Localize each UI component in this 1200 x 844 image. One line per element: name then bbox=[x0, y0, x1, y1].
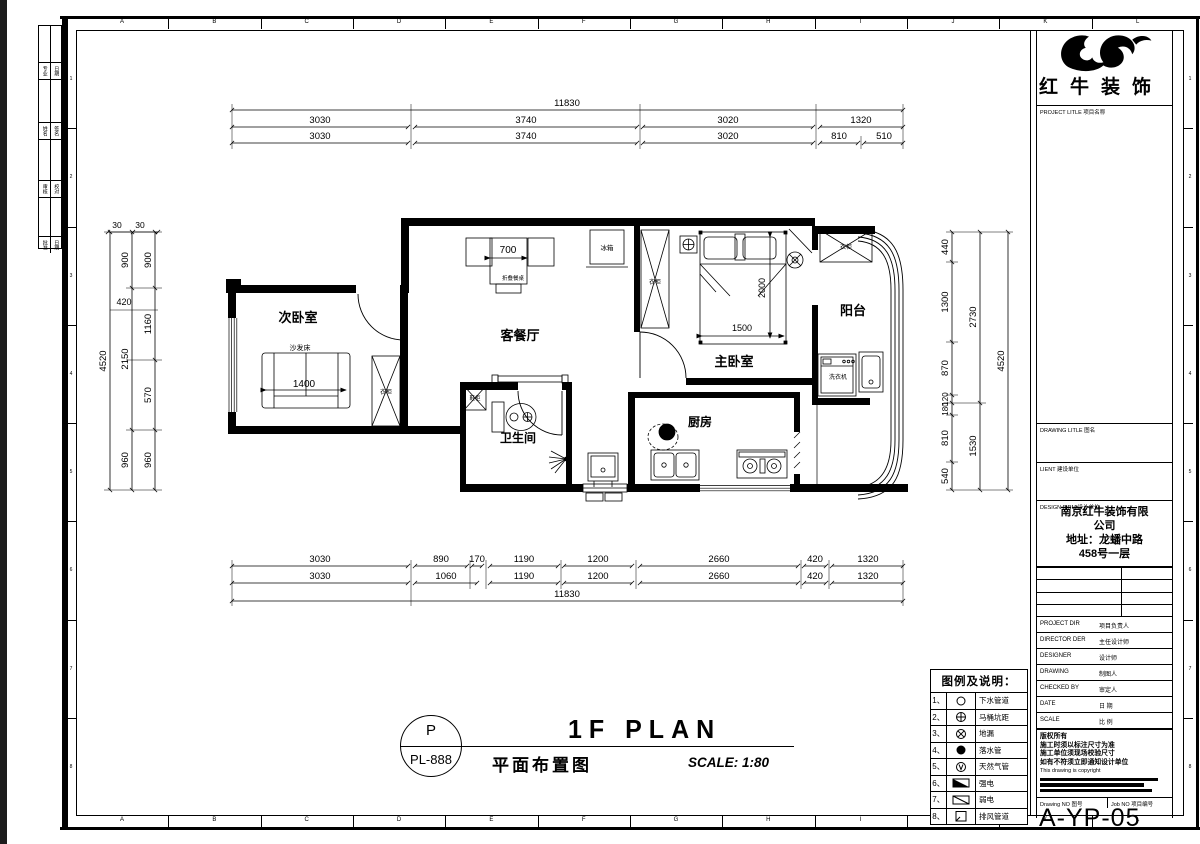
legend-label: 地漏 bbox=[976, 728, 1027, 739]
dim-table: 700 bbox=[500, 245, 517, 256]
dimension-lines bbox=[108, 110, 1008, 601]
legend-row: 7、 弱电 bbox=[931, 792, 1027, 809]
dim-label: 960 bbox=[120, 452, 131, 468]
gas-symbol bbox=[787, 252, 803, 268]
legend-no: 4、 bbox=[931, 743, 947, 759]
project-title-label: PROJECT LITLE 项目名称 bbox=[1040, 108, 1105, 116]
drawing-number-block: Drawing NO 图号 Job NO 项目编号 A-YP-05 bbox=[1037, 797, 1172, 830]
dim-label: 4520 bbox=[996, 350, 1007, 371]
label-shoe-cabinet: 鞋柜 bbox=[469, 394, 481, 402]
dim-label: 870 bbox=[940, 360, 951, 376]
dim-label: 3030 bbox=[309, 115, 330, 126]
dim-label: 810 bbox=[831, 131, 847, 142]
legend-no: 7、 bbox=[931, 792, 947, 808]
legend-no: 5、 bbox=[931, 759, 947, 775]
dim-label: 1300 bbox=[940, 291, 951, 312]
stamp-line bbox=[400, 746, 794, 747]
client-label: LIENT 建设单位 bbox=[1040, 465, 1079, 473]
legend-no: 8、 bbox=[931, 809, 947, 825]
label-wardrobe: 衣柜 bbox=[380, 388, 392, 396]
dim-bed-length: 2000 bbox=[757, 278, 767, 298]
gas-stove bbox=[737, 450, 787, 478]
stamp-code: PL-888 bbox=[400, 752, 462, 767]
titleblock-row: DRAWING制图人 bbox=[1037, 664, 1172, 680]
titleblock-row: DATE日 期 bbox=[1037, 696, 1172, 712]
legend-row: 4、 落水管 bbox=[931, 743, 1027, 760]
strong-power-icon bbox=[947, 776, 976, 792]
plan-title-cn: 平面布置图 bbox=[492, 751, 592, 776]
dim-label: 510 bbox=[876, 131, 892, 142]
dim-label: 1530 bbox=[968, 435, 979, 456]
dim-label: 30 bbox=[135, 220, 145, 230]
legend-label: 强电 bbox=[976, 778, 1027, 789]
titleblock-row: CHECKED BY审定人 bbox=[1037, 680, 1172, 696]
label-wardrobe: 衣柜 bbox=[840, 243, 852, 251]
drawing-title-label: DRAWING LITLE 图名 bbox=[1040, 426, 1095, 434]
dim-label: 900 bbox=[120, 252, 131, 268]
room-label-bedroom2: 次卧室 bbox=[278, 310, 317, 325]
dim-label: 420 bbox=[116, 297, 131, 307]
legend-box: 图例及说明： 1、 下水管道 2、 马桶坑距 3、 地漏 4、 落水管 5、 天… bbox=[930, 669, 1028, 825]
label-sofa-bed: 沙发床 bbox=[290, 343, 311, 352]
room-label-master: 主卧室 bbox=[714, 354, 753, 369]
dim-label: 3740 bbox=[515, 115, 536, 126]
wok-symbol bbox=[648, 424, 678, 450]
legend-label: 弱电 bbox=[976, 794, 1027, 805]
dim-label: 2660 bbox=[708, 554, 729, 565]
legend-row: 6、 强电 bbox=[931, 776, 1027, 793]
dim-label: 900 bbox=[143, 252, 154, 268]
drawing-sheet: AABBCCDDEEFFGGHHIIJJKKLL1122334455667788… bbox=[0, 0, 1200, 844]
legend-label: 落水管 bbox=[976, 745, 1027, 756]
shower-symbol bbox=[549, 451, 568, 473]
dim-label: 1160 bbox=[143, 314, 154, 334]
dim-label: 3740 bbox=[515, 131, 536, 142]
legend-no: 1、 bbox=[931, 693, 947, 709]
legend-label: 天然气管 bbox=[976, 761, 1027, 772]
room-label-bath: 卫生间 bbox=[500, 430, 536, 445]
dim-label: 3030 bbox=[309, 131, 330, 142]
exhaust-duct-icon bbox=[947, 809, 976, 825]
design-firm-info: 南京红牛装饰有限 公司 地址：龙蟠中路 458号一层 bbox=[1037, 505, 1172, 561]
dim-label: 180 bbox=[941, 402, 950, 416]
label-washer: 洗衣机 bbox=[829, 373, 847, 381]
downspout-icon bbox=[947, 743, 976, 759]
room-label-living: 客餐厅 bbox=[500, 328, 539, 343]
dim-label: 11830 bbox=[554, 98, 580, 109]
titleblock-row: DESIGNER设计师 bbox=[1037, 648, 1172, 664]
balcony-sink bbox=[859, 352, 883, 392]
legend-row: 1、 下水管道 bbox=[931, 693, 1027, 710]
balcony-glazing bbox=[858, 229, 903, 499]
titleblock-row: SCALE比 例 bbox=[1037, 712, 1172, 728]
titleblock-row: PROJECT DIR项目负责人 bbox=[1037, 616, 1172, 632]
dim-label: 3030 bbox=[309, 554, 330, 565]
dim-label: 540 bbox=[940, 468, 951, 484]
legend-row: 3、 地漏 bbox=[931, 726, 1027, 743]
dim-label: 4520 bbox=[98, 350, 109, 371]
sewer-pipe-icon bbox=[947, 693, 976, 709]
walls bbox=[226, 218, 908, 492]
dim-label: 30 bbox=[112, 220, 122, 230]
gas-pipe-icon bbox=[947, 759, 976, 775]
label-folding-table: 折叠餐桌 bbox=[502, 274, 525, 282]
company-name: 红牛装饰 bbox=[1035, 72, 1174, 99]
entry-threshold bbox=[583, 484, 627, 501]
label-wardrobe: 衣柜 bbox=[649, 278, 661, 286]
legend-label: 排风管道 bbox=[976, 811, 1027, 822]
dim-label: 1190 bbox=[514, 554, 534, 565]
lamp-symbol bbox=[680, 236, 697, 253]
titleblock-empty-table bbox=[1037, 566, 1172, 616]
dim-bed-width: 1500 bbox=[732, 323, 752, 333]
door-arc-master bbox=[640, 332, 686, 378]
witness-lines bbox=[104, 104, 1013, 606]
floor-drain-icon bbox=[947, 726, 976, 742]
wardrobe-master bbox=[641, 230, 669, 328]
legend-label: 马桶坑距 bbox=[976, 712, 1027, 723]
dim-label: 420 bbox=[807, 554, 823, 565]
dim-label: 810 bbox=[940, 430, 951, 446]
plan-scale: SCALE: 1:80 bbox=[688, 755, 769, 770]
dim-label: 890 bbox=[433, 554, 449, 565]
dim-label: 170 bbox=[469, 554, 485, 565]
dim-label: 2150 bbox=[120, 348, 131, 369]
tv-unit bbox=[492, 375, 568, 383]
dim-label: 3030 bbox=[309, 571, 330, 582]
wash-basin bbox=[588, 453, 618, 487]
weak-power-icon bbox=[947, 792, 976, 808]
title-block: 红牛装饰 PROJECT LITLE 项目名称 DRAWING LITLE 图名… bbox=[1036, 30, 1173, 818]
toilet-pit-icon bbox=[947, 710, 976, 726]
legend-title: 图例及说明： bbox=[931, 670, 1027, 693]
dim-sofa: 1400 bbox=[293, 379, 316, 390]
dim-label: 570 bbox=[143, 387, 154, 403]
dim-label: 1200 bbox=[587, 571, 608, 582]
dim-label: 1190 bbox=[514, 571, 534, 582]
legend-no: 2、 bbox=[931, 710, 947, 726]
label-fridge: 冰箱 bbox=[601, 243, 615, 252]
legend-no: 6、 bbox=[931, 776, 947, 792]
door-leaf-balcony bbox=[789, 229, 812, 253]
dim-label: 3020 bbox=[717, 131, 738, 142]
copyright-notes: 版权所有 施工时须以标注尺寸为准 施工单位须现场校验尺寸 如有不符须立即通知设计… bbox=[1037, 728, 1172, 797]
dim-label: 11830 bbox=[554, 589, 580, 600]
dim-label: 420 bbox=[807, 571, 823, 582]
kitchen-sink bbox=[651, 450, 699, 480]
dim-label: 2660 bbox=[708, 571, 729, 582]
dim-label: 3020 bbox=[717, 115, 738, 126]
door-arc-bath bbox=[518, 391, 562, 435]
legend-no: 3、 bbox=[931, 726, 947, 742]
legend-row: 8、 排风管道 bbox=[931, 809, 1027, 825]
plan-title-en: 1F PLAN bbox=[568, 716, 721, 746]
legend-row: 5、 天然气管 bbox=[931, 759, 1027, 776]
stamp-letter: P bbox=[400, 722, 462, 739]
legend-row: 2、 马桶坑距 bbox=[931, 710, 1027, 727]
dim-label: 1320 bbox=[857, 554, 878, 565]
dim-label: 2730 bbox=[968, 306, 979, 327]
drawing-number: A-YP-05 bbox=[1039, 804, 1140, 833]
company-logo-icon bbox=[1057, 30, 1153, 72]
dim-label: 1200 bbox=[587, 554, 608, 565]
dim-label: 1320 bbox=[857, 571, 878, 582]
room-label-balcony: 阳台 bbox=[840, 303, 866, 318]
legend-label: 下水管道 bbox=[976, 695, 1027, 706]
dim-label: 1060 bbox=[435, 571, 456, 582]
dim-label: 1320 bbox=[850, 115, 871, 126]
dim-label: 960 bbox=[143, 452, 154, 468]
toilet bbox=[492, 402, 536, 432]
door-arc-bedroom2 bbox=[358, 294, 404, 340]
titleblock-row: DIRECTOR DER主任设计师 bbox=[1037, 632, 1172, 648]
furniture bbox=[262, 230, 883, 487]
dim-label: 440 bbox=[940, 239, 951, 255]
room-label-kitchen: 厨房 bbox=[688, 414, 712, 429]
